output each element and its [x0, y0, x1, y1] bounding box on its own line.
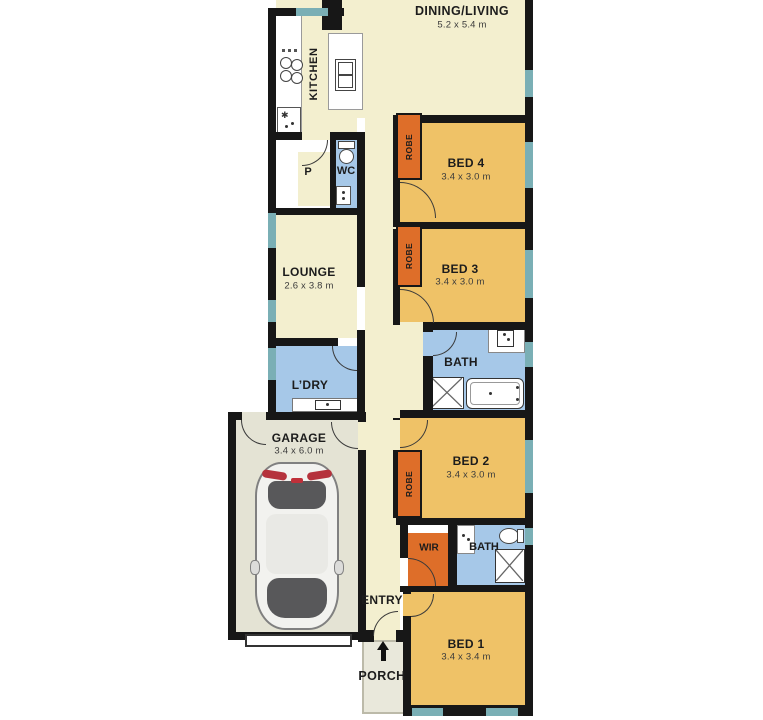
car-mirror [250, 560, 260, 575]
robe-label: ROBE [404, 243, 414, 269]
room-label-entry: ENTRY [361, 593, 403, 607]
wall [330, 140, 336, 208]
wall [423, 322, 533, 330]
room-label-bed4: BED 4 [448, 156, 485, 170]
window [486, 708, 518, 716]
kitchen-sink-icon: ✱ [281, 110, 289, 121]
car-top-view-illustration [255, 462, 339, 630]
room-label-kitchen: KITCHEN [308, 47, 320, 100]
car-mirror [334, 560, 344, 575]
cooktop-knobs [282, 49, 297, 55]
car-windshield [267, 578, 327, 618]
room-label-dining-living: DINING/LIVING [415, 4, 509, 18]
room-dims-dining-living: 5.2 x 5.4 m [437, 20, 486, 31]
wall [268, 208, 365, 215]
shower-cross-icon [432, 378, 462, 407]
shower-cross-icon [496, 550, 523, 581]
room-dims-bed3: 3.4 x 3.0 m [435, 277, 484, 288]
doorway [403, 594, 411, 616]
wall [276, 132, 302, 140]
bed4-robe: ROBE [396, 113, 422, 180]
toilet-bowl [339, 149, 354, 164]
room-label-wc: WC [337, 165, 355, 177]
room-label-laundry: L’DRY [292, 378, 328, 392]
room-label-wir: WIR [419, 543, 438, 554]
bathtub [466, 378, 524, 409]
bed3-robe: ROBE [396, 225, 422, 287]
doorway [400, 558, 408, 586]
room-dims-lounge: 2.6 x 3.8 m [284, 281, 333, 292]
room-label-garage: GARAGE [272, 431, 326, 445]
laundry-tub [315, 400, 341, 410]
bath-vanity [488, 326, 525, 353]
window [525, 250, 533, 298]
wall [330, 132, 365, 140]
wall [400, 410, 533, 418]
window [525, 70, 533, 97]
wall [396, 630, 410, 642]
room-label-porch: PORCH [358, 669, 405, 683]
wc-basin [336, 186, 351, 205]
ensuite-toilet-bowl [499, 528, 519, 544]
cooktop-burner [291, 59, 303, 71]
room-dims-bed2: 3.4 x 3.0 m [446, 470, 495, 481]
entry-arrow-icon [377, 641, 389, 662]
wall [358, 630, 374, 642]
window [296, 8, 328, 16]
bath-vanity-basin [497, 330, 514, 347]
floor-plan: ✱ [0, 0, 763, 720]
wall [396, 518, 533, 525]
ensuite-toilet-tank [517, 529, 524, 543]
doorway [242, 412, 266, 420]
laundry-external-door [268, 348, 276, 380]
window [525, 342, 533, 367]
hallway-bath-nook-floor [400, 322, 423, 410]
window [525, 142, 533, 188]
kitchen-sink: ✱ [277, 107, 301, 133]
doorway [423, 332, 433, 356]
doorway [393, 420, 400, 450]
room-label-bed2: BED 2 [453, 454, 490, 468]
room-label-lounge: LOUNGE [282, 265, 335, 279]
car-rear-window [268, 481, 326, 509]
island-sink [335, 59, 356, 91]
wall [268, 412, 366, 420]
window [412, 708, 443, 716]
room-label-ensuite: BATH [469, 541, 499, 553]
room-label-bed1: BED 1 [448, 637, 485, 651]
wall [400, 585, 533, 592]
window [268, 300, 276, 322]
room-dims-garage: 3.4 x 6.0 m [274, 446, 323, 457]
shower [431, 377, 464, 409]
wall [228, 412, 236, 640]
robe-label: ROBE [404, 471, 414, 497]
bed2-robe: ROBE [396, 450, 422, 518]
cooktop-burner [291, 72, 303, 84]
car-brake-light [291, 478, 303, 483]
toilet [338, 141, 355, 149]
window [525, 440, 533, 493]
kitchen-island [328, 33, 363, 110]
room-dims-bed4: 3.4 x 3.0 m [441, 172, 490, 183]
laundry-bench [292, 398, 358, 412]
wall [357, 330, 365, 412]
ensuite-shower [495, 549, 525, 583]
wall [268, 338, 338, 346]
room-label-bath: BATH [444, 355, 478, 369]
car-roof [266, 514, 328, 574]
window [525, 528, 533, 545]
room-label-bed3: BED 3 [442, 262, 479, 276]
window [268, 213, 276, 248]
wall [448, 525, 457, 592]
robe-label: ROBE [404, 133, 414, 159]
doorway [358, 422, 366, 450]
room-label-pantry: P [304, 166, 311, 178]
room-dims-bed1: 3.4 x 3.4 m [441, 652, 490, 663]
garage-door [245, 634, 352, 647]
